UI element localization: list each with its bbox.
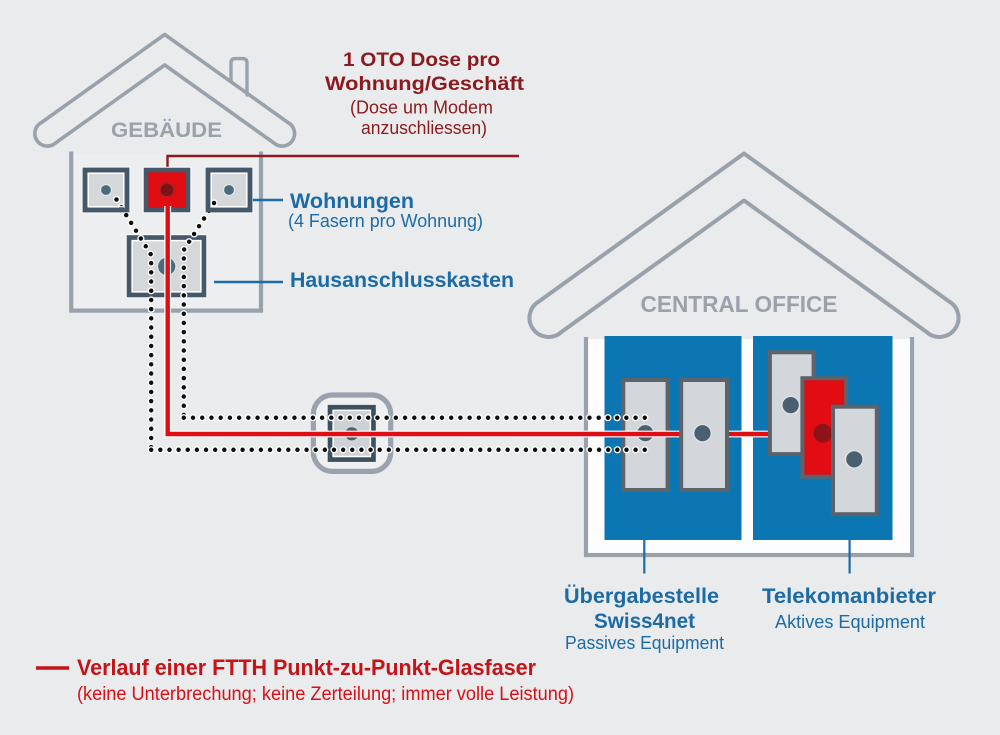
svg-text:Telekomanbieter: Telekomanbieter <box>762 584 937 608</box>
svg-text:Verlauf einer FTTH Punkt-zu-Pu: Verlauf einer FTTH Punkt-zu-Punkt-Glasfa… <box>77 655 536 680</box>
svg-text:Wohnung/Geschäft: Wohnung/Geschäft <box>325 73 525 95</box>
svg-text:Passives Equipment: Passives Equipment <box>565 633 724 653</box>
svg-text:CENTRAL OFFICE: CENTRAL OFFICE <box>641 291 838 317</box>
svg-text:GEBÄUDE: GEBÄUDE <box>111 119 222 142</box>
svg-text:(keine Unterbrechung; keine Ze: (keine Unterbrechung; keine Zerteilung; … <box>77 684 574 705</box>
svg-text:Swiss4net: Swiss4net <box>594 609 695 633</box>
svg-text:anzuschliessen): anzuschliessen) <box>361 118 487 138</box>
svg-text:(4 Fasern pro Wohnung): (4 Fasern pro Wohnung) <box>288 211 483 231</box>
svg-text:Wohnungen: Wohnungen <box>290 190 414 213</box>
svg-text:Aktives Equipment: Aktives Equipment <box>775 612 925 632</box>
svg-text:1 OTO Dose pro: 1 OTO Dose pro <box>343 49 500 71</box>
svg-text:(Dose um Modem: (Dose um Modem <box>350 97 493 117</box>
svg-text:Hausanschlusskasten: Hausanschlusskasten <box>290 269 514 292</box>
svg-text:Übergabestelle: Übergabestelle <box>564 583 719 608</box>
